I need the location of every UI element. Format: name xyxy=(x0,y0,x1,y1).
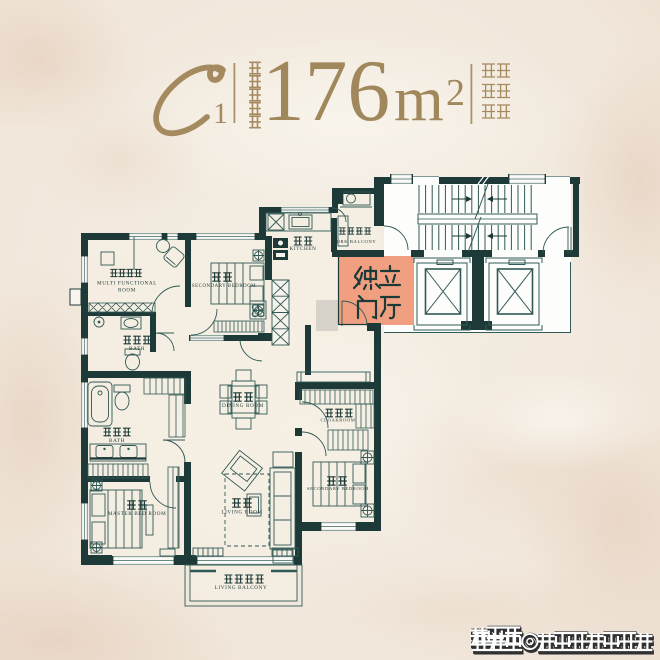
svg-text:LIVING BALCONY: LIVING BALCONY xyxy=(215,585,268,591)
svg-text:MULTI FUNCTIONAL: MULTI FUNCTIONAL xyxy=(97,281,157,287)
svg-text:ROOM: ROOM xyxy=(118,288,136,294)
svg-text:BATH: BATH xyxy=(109,438,125,444)
svg-text:m: m xyxy=(394,63,444,134)
svg-text:SECONDARY BEDROOM: SECONDARY BEDROOM xyxy=(307,486,369,491)
svg-text:LIVING ROOM: LIVING ROOM xyxy=(221,510,262,516)
svg-text:176: 176 xyxy=(262,42,390,139)
svg-text:KITCHEN: KITCHEN xyxy=(290,246,317,252)
svg-text:BATH: BATH xyxy=(129,346,145,352)
svg-text:DINING ROOM: DINING ROOM xyxy=(222,403,264,409)
svg-text:2: 2 xyxy=(446,72,465,114)
svg-text:MASTER BED ROOM: MASTER BED ROOM xyxy=(108,511,167,517)
svg-text:SECONDARY BEDROOM: SECONDARY BEDROOM xyxy=(192,284,256,289)
svg-text:CLOAKROOM: CLOAKROOM xyxy=(320,418,355,423)
svg-text:WORK BALCONY: WORK BALCONY xyxy=(332,239,377,244)
svg-text:1: 1 xyxy=(213,97,228,130)
